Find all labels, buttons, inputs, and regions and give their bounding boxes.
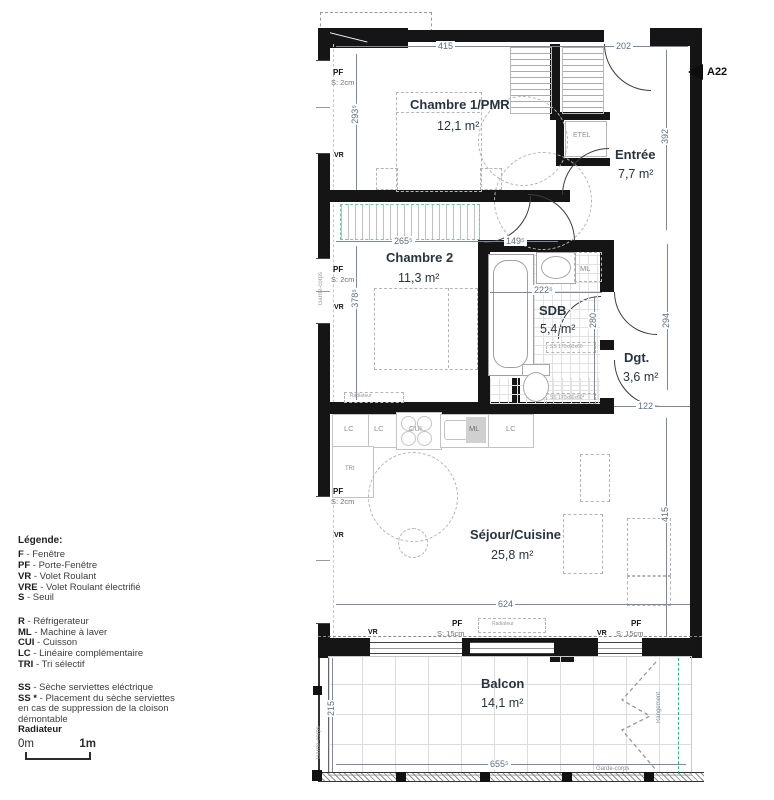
dimension-label: 202 (614, 41, 633, 51)
wall-segment (600, 340, 614, 350)
garde-corps-label: Garde-corps (316, 726, 322, 759)
legend-item: PF - Porte-Fenêtre (18, 561, 176, 571)
legend-item: S - Seuil (18, 593, 176, 603)
legend-term: Radiateur (18, 724, 62, 735)
room-label-balcon: Balcon (481, 676, 524, 691)
legend-item: R - Réfrigerateur (18, 617, 176, 627)
dimension-label: 149⁵ (504, 236, 527, 246)
hob-burner (401, 431, 416, 446)
tv-unit (580, 454, 610, 502)
pf-label: PF (333, 487, 343, 496)
wall-segment (318, 28, 408, 48)
pf-label: PF (452, 619, 462, 628)
nightstand (376, 168, 398, 190)
legend-item: F - Fenêtre (18, 550, 176, 560)
wall-segment (404, 30, 604, 42)
legend-term: S (18, 592, 24, 603)
legend-item: VR - Volet Roulant (18, 572, 176, 582)
garde-corps-label: Garde-corps (318, 272, 324, 305)
sink-basin (444, 420, 468, 440)
legend-term: TRI (18, 659, 33, 670)
seuil-label: S: 2cm (331, 275, 354, 284)
towel-dryer-label: SS 170x60x60 (550, 344, 583, 350)
ml-kitchen-label: ML (469, 424, 479, 433)
rail-post (312, 770, 322, 781)
legend-term: SS (18, 682, 31, 693)
dimension-line (356, 246, 357, 400)
room-label-sdb: SDB (539, 303, 566, 318)
dimension-label: 415 (436, 41, 455, 51)
pf-label: PF (631, 619, 641, 628)
room-area-entree: 7,7 m² (618, 167, 653, 181)
legend-desc: - Volet Roulant (34, 571, 96, 582)
legend-desc: - Tri sélectif (36, 659, 85, 670)
rail-post (313, 686, 322, 695)
legend-item: SS * - Placement du sèche serviettes en … (18, 694, 176, 725)
etel-label: ETEL (573, 132, 591, 139)
legend-term: CUI (18, 637, 34, 648)
balcony-door (598, 642, 642, 654)
vr-label: VR (334, 532, 344, 539)
legend-item: LC - Linéaire complémentaire (18, 649, 176, 659)
vr-label: VR (368, 629, 378, 636)
room-area-balcon: 14,1 m² (481, 696, 523, 710)
dimension-label: 415 (660, 506, 670, 523)
tri-label: TRI (345, 466, 355, 472)
seuil-label: S: 15cm (616, 629, 644, 638)
wall-segment (318, 638, 370, 656)
radiator-label: Radiateur (492, 621, 514, 627)
seuil-label: S: 2cm (331, 78, 354, 87)
door-arc-dgt-entree (614, 292, 657, 335)
wall-segment (600, 240, 614, 292)
dimension-label: 378⁵ (350, 288, 360, 309)
coffee-table (563, 514, 603, 574)
legend-term: PF (18, 560, 30, 571)
dimension-label: 293⁵ (350, 104, 360, 125)
armchair (627, 576, 671, 606)
room-area-chambre1: 12,1 m² (437, 119, 479, 133)
floorplan-page: { "marker": { "label": "A22" }, "rooms":… (0, 0, 774, 800)
dimension-label: 280 (588, 312, 598, 329)
radiator-label: Radiateur (350, 393, 372, 399)
room-area-sdb: 5,4 m² (540, 322, 575, 336)
room-label-dgt: Dgt. (624, 350, 649, 365)
legend-term: LC (18, 648, 31, 659)
dimension-label: 655⁵ (488, 759, 511, 769)
dimension-label: 122 (636, 401, 655, 411)
window (316, 496, 330, 624)
legend-term: ML (18, 627, 32, 638)
legend-desc: - Seuil (27, 592, 54, 603)
legend-desc: - Réfrigerateur (28, 616, 89, 627)
legend-desc: - Linéaire complémentaire (33, 648, 143, 659)
seuil-label: S: 15cm (437, 629, 465, 638)
towel-dryer-label: SS 170x60x60* (550, 395, 584, 401)
rangement-label: Rangement (656, 692, 662, 723)
dimension-label: 392 (660, 128, 670, 145)
legend-desc: - Machine à laver (34, 627, 107, 638)
dimension-label: 624 (496, 599, 515, 609)
bathtub-inner (493, 260, 528, 368)
room-label-entree: Entrée (615, 147, 655, 162)
lc-label: LC (506, 424, 516, 433)
rail-post (562, 772, 572, 782)
room-label-sejour: Séjour/Cuisine (470, 527, 561, 542)
window (316, 60, 330, 154)
chair (398, 528, 428, 558)
balcony-door (370, 642, 462, 654)
dimension-label: 215 (326, 700, 336, 717)
legend-desc: - Porte-Fenêtre (33, 560, 97, 571)
legend-item: ML - Machine à laver (18, 628, 176, 638)
legend: Légende: F - Fenêtre PF - Porte-Fenêtre … (18, 536, 176, 736)
scale-one: 1m (79, 738, 96, 750)
legend-item: SS - Sèche serviettes eléctrique (18, 683, 176, 693)
ml-sdb-label: ML (580, 264, 590, 273)
legend-desc: - Placement du sèche serviettes en cas d… (18, 693, 175, 725)
scale-bracket (25, 752, 91, 760)
pf-label: PF (333, 265, 343, 274)
legend-term: VR (18, 571, 31, 582)
scale-zero: 0m (18, 738, 34, 750)
sofa (627, 518, 671, 576)
wall-segment (642, 638, 702, 656)
wall-segment (690, 44, 702, 658)
lc-label: LC (374, 424, 384, 433)
window (470, 642, 554, 654)
vr-label: VR (334, 152, 344, 159)
storage-limit-line (678, 658, 679, 774)
vr-label: VR (334, 304, 344, 311)
a22-label: A22 (707, 66, 727, 78)
dimension-label: 265⁵ (392, 236, 415, 246)
dimension-label: 294 (661, 312, 671, 329)
dimension-label: 222⁵ (532, 285, 555, 295)
dressing-zone (340, 204, 480, 240)
room-area-sejour: 25,8 m² (491, 548, 533, 562)
vr-label: VR (597, 630, 607, 637)
rail-post (396, 772, 406, 782)
threshold-line (318, 636, 702, 637)
legend-item: VRE - Volet Roulant électrifié (18, 583, 176, 593)
pf-label: PF (333, 68, 343, 77)
legend-item: TRI - Tri sélectif (18, 660, 176, 670)
legend-item: Radiateur (18, 725, 176, 735)
duct-shaft (562, 46, 604, 114)
rail-post (480, 772, 490, 782)
scale-bar: 0m 1m (18, 738, 96, 750)
cui-label: CUI (409, 424, 422, 433)
room-area-dgt: 3,6 m² (623, 370, 658, 384)
legend-desc: - Sèche serviettes eléctrique (33, 682, 153, 693)
a22-arrow-icon (688, 64, 703, 80)
washbasin (541, 256, 571, 279)
door-arc-entrance (604, 44, 651, 91)
legend-desc: - Fenêtre (26, 549, 65, 560)
legend-desc: - Volet Roulant électrifié (40, 582, 140, 593)
bed-pillows (448, 288, 477, 368)
garde-corps-label: Garde-corps (596, 766, 629, 772)
lc-label: LC (344, 424, 354, 433)
legend-term: VRE (18, 582, 38, 593)
legend-term: F (18, 549, 24, 560)
dimension-line (666, 418, 667, 636)
legend-item: CUI - Cuisson (18, 638, 176, 648)
room-label-chambre2: Chambre 2 (386, 250, 453, 265)
room-area-chambre2: 11,3 m² (398, 271, 439, 285)
dimension-line (336, 46, 688, 47)
dimension-line (336, 764, 686, 765)
seuil-label: S: 2cm (331, 497, 354, 506)
hob-burner (417, 431, 432, 446)
legend-term: R (18, 616, 25, 627)
legend-desc: - Cuisson (37, 637, 77, 648)
legend-title: Légende: (18, 536, 176, 546)
room-label-chambre1: Chambre 1/PMR (410, 97, 510, 112)
insulation-line (333, 44, 334, 638)
